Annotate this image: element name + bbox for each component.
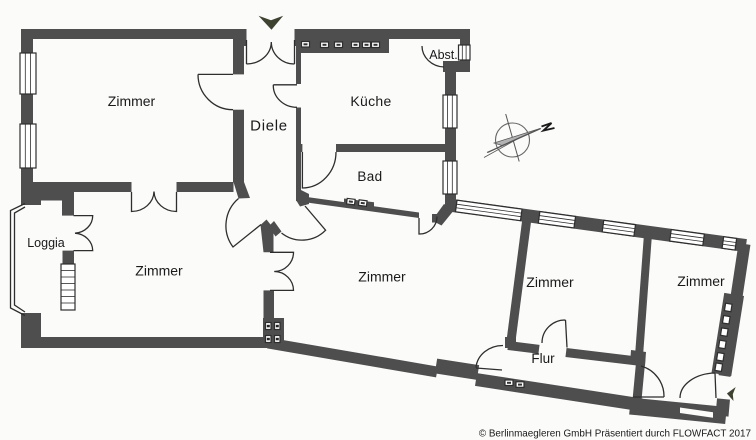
svg-text:Küche: Küche xyxy=(350,93,391,109)
svg-text:Zimmer: Zimmer xyxy=(108,93,156,109)
svg-text:Zimmer: Zimmer xyxy=(358,269,406,285)
svg-text:© Berlinmaegleren GmbH Präsent: © Berlinmaegleren GmbH Präsentiert durch… xyxy=(479,429,751,440)
svg-text:Abst.: Abst. xyxy=(429,48,458,62)
svg-text:Zimmer: Zimmer xyxy=(526,274,574,290)
svg-text:Zimmer: Zimmer xyxy=(135,263,183,279)
svg-text:Bad: Bad xyxy=(357,169,382,184)
svg-text:Flur: Flur xyxy=(531,351,555,366)
svg-text:Diele: Diele xyxy=(250,118,288,135)
svg-text:Loggia: Loggia xyxy=(27,236,65,250)
svg-text:Zimmer: Zimmer xyxy=(677,273,725,289)
